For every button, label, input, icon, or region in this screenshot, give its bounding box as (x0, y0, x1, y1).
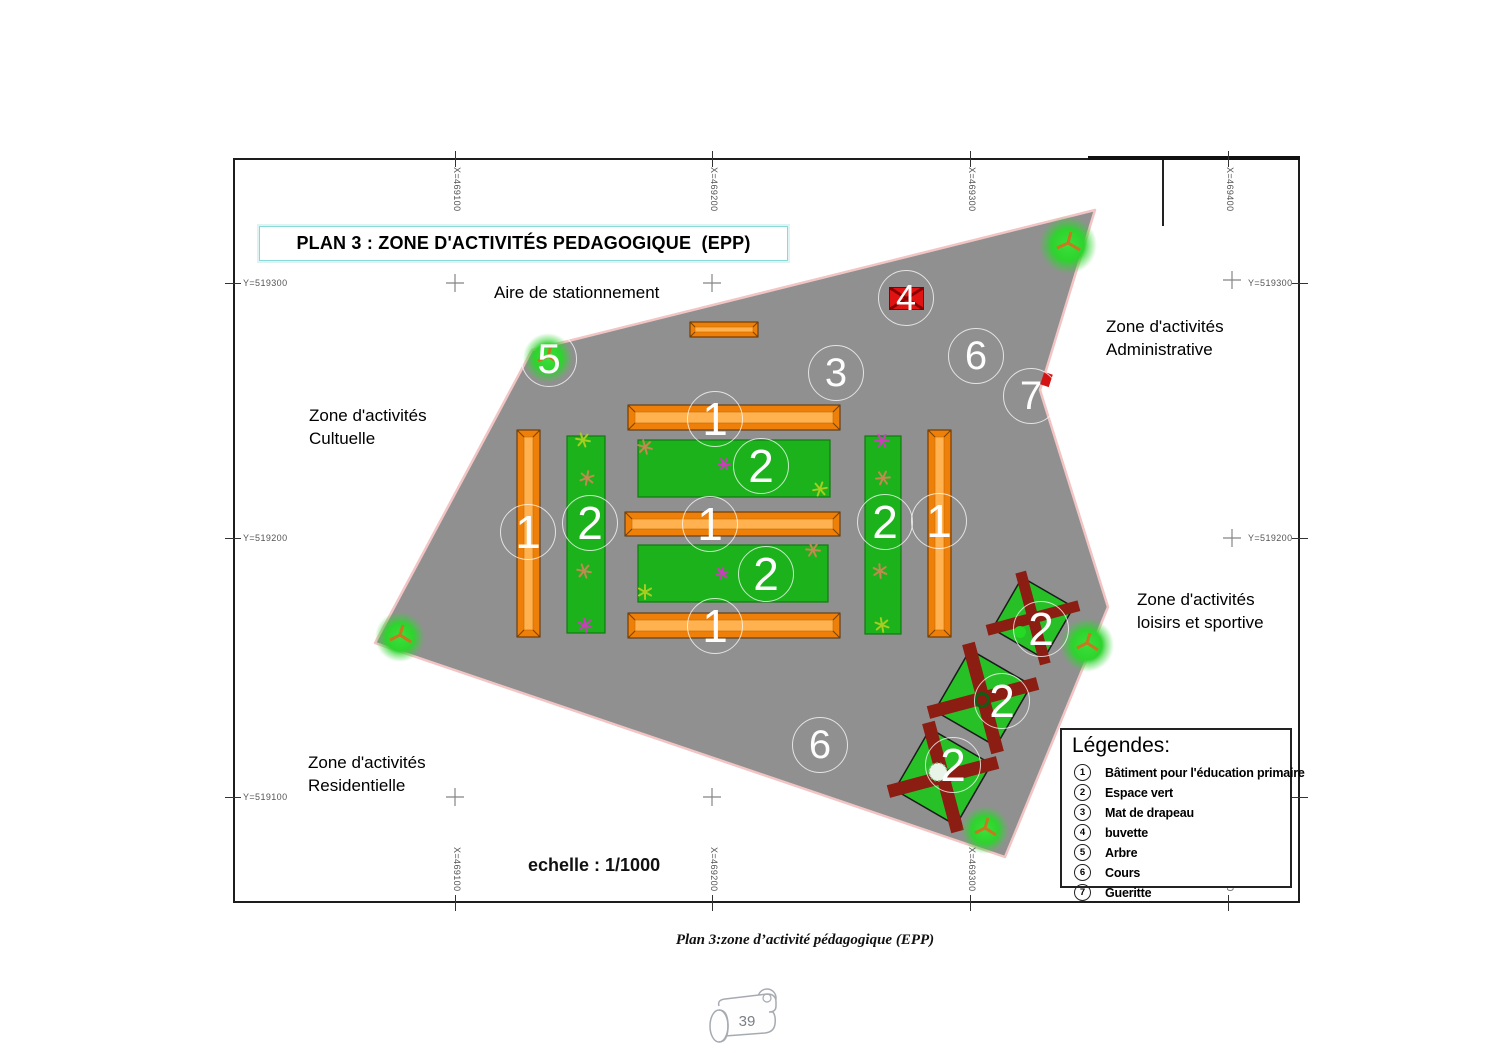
legend-number-circle: 7 (1074, 884, 1091, 901)
tree-icon (1039, 216, 1097, 274)
marker-mat-de-drapeau: 3 (808, 345, 864, 401)
marker-batiment: 1 (682, 496, 738, 552)
zone-label-line: Administrative (1106, 338, 1224, 361)
marker-number: 2 (1028, 602, 1054, 656)
zone-label-line: Cultuelle (309, 427, 427, 450)
legend-item-label: Mat de drapeau (1105, 806, 1194, 820)
zone-label-line: Residentielle (308, 774, 426, 797)
legend-item-label: Gueritte (1105, 886, 1151, 900)
marker-espace-vert: 2 (562, 495, 618, 551)
legend-item: 4 buvette (1074, 824, 1282, 841)
label-parking: Aire de stationnement (494, 281, 659, 304)
legend-item: 5 Arbre (1074, 844, 1282, 861)
legend-item-label: Cours (1105, 866, 1140, 880)
legend-item: 3 Mat de drapeau (1074, 804, 1282, 821)
marker-number: 1 (515, 505, 541, 559)
grid-tick (455, 895, 456, 911)
legend-number-circle: 2 (1074, 784, 1091, 801)
marker-number: 1 (702, 599, 728, 653)
marker-batiment: 1 (687, 391, 743, 447)
grid-tick (970, 151, 971, 167)
legend-number-circle: 4 (1074, 824, 1091, 841)
zone-label-line: Zone d'activités (308, 751, 426, 774)
label-zone-administrative: Zone d'activités Administrative (1106, 315, 1224, 361)
marker-espace-vert: 2 (857, 494, 913, 550)
grid-y-label: Y=519200 (1248, 533, 1293, 543)
page-number-scroll: 39 (703, 986, 787, 1053)
survey-line (1162, 160, 1164, 226)
grid-y-label: Y=519300 (1248, 278, 1293, 288)
grid-tick (712, 151, 713, 167)
grid-tick (455, 151, 456, 167)
marker-number: 7 (1020, 374, 1042, 419)
label-zone-cultuelle: Zone d'activités Cultuelle (309, 404, 427, 450)
marker-espace-vert: 2 (925, 737, 981, 793)
grid-y-label: Y=519200 (243, 533, 288, 543)
marker-number: 1 (697, 497, 723, 551)
marker-number: 6 (809, 723, 831, 768)
legend-item-label: Espace vert (1105, 786, 1173, 800)
marker-espace-vert: 2 (738, 546, 794, 602)
page-number: 39 (739, 1013, 756, 1030)
marker-number: 6 (965, 334, 987, 379)
thick-border-segment (1088, 156, 1300, 160)
marker-arbre: 5 (521, 331, 577, 387)
marker-espace-vert: 2 (733, 438, 789, 494)
marker-number: 2 (753, 547, 779, 601)
marker-batiment: 1 (687, 598, 743, 654)
grid-tick (1228, 151, 1229, 167)
marker-batiment: 1 (500, 504, 556, 560)
grid-tick (1292, 283, 1308, 284)
legend-number-circle: 5 (1074, 844, 1091, 861)
legend-item: 6 Cours (1074, 864, 1282, 881)
marker-espace-vert: 2 (1013, 601, 1069, 657)
grid-tick (1292, 538, 1308, 539)
grid-x-label: X=469100 (452, 847, 462, 892)
grid-x-label: X=469400 (1225, 167, 1235, 212)
plan-title: PLAN 3 : ZONE D'ACTIVITÉS PEDAGOGIQUE (E… (296, 233, 750, 254)
grid-tick (970, 895, 971, 911)
marker-gueritte: 7 (1003, 368, 1059, 424)
legend-box: Légendes: 1 Bâtiment pour l'éducation pr… (1060, 728, 1292, 888)
zone-label-line: Zone d'activités (309, 404, 427, 427)
grid-y-label: Y=519300 (243, 278, 288, 288)
scroll-icon: 39 (703, 986, 787, 1048)
marker-number: 4 (896, 277, 916, 319)
zone-label-line: Zone d'activités (1106, 315, 1224, 338)
marker-number: 2 (872, 495, 898, 549)
building-bar (690, 322, 758, 337)
grid-x-label: X=469200 (709, 847, 719, 892)
marker-number: 5 (537, 335, 560, 383)
marker-espace-vert: 2 (974, 673, 1030, 729)
marker-batiment: 1 (911, 493, 967, 549)
grid-x-label: X=469300 (967, 847, 977, 892)
figure-caption: Plan 3:zone d’activité pédagogique (EPP) (676, 932, 934, 949)
grid-tick (225, 283, 241, 284)
legend-number-circle: 3 (1074, 804, 1091, 821)
marker-buvette: 4 (878, 270, 934, 326)
label-zone-residentielle: Zone d'activités Residentielle (308, 751, 426, 797)
legend-item: 7 Gueritte (1074, 884, 1282, 901)
grid-tick (1292, 797, 1308, 798)
legend-item-label: Arbre (1105, 846, 1137, 860)
marker-cours: 6 (948, 328, 1004, 384)
marker-number: 1 (702, 392, 728, 446)
plan-title-box: PLAN 3 : ZONE D'ACTIVITÉS PEDAGOGIQUE (E… (259, 226, 788, 261)
legend-number-circle: 1 (1074, 764, 1091, 781)
marker-number: 3 (825, 351, 847, 396)
marker-number: 2 (940, 738, 966, 792)
scale-label: echelle : 1/1000 (528, 855, 660, 876)
grid-tick (225, 538, 241, 539)
grid-x-label: X=469200 (709, 167, 719, 212)
grid-tick (225, 797, 241, 798)
label-zone-loisirs-sportive: Zone d'activités loisirs et sportive (1137, 588, 1264, 634)
marker-number: 2 (989, 674, 1015, 728)
legend-item-label: Bâtiment pour l'éducation primaire (1105, 766, 1305, 780)
marker-number: 2 (577, 496, 603, 550)
marker-cours: 6 (792, 717, 848, 773)
grid-x-label: X=469100 (452, 167, 462, 212)
document-page: X=469100 X=469200 X=469300 X=469400 X=46… (0, 0, 1489, 1053)
grid-tick (712, 895, 713, 911)
tree-icon (375, 612, 425, 662)
legend-title: Légendes: (1072, 734, 1282, 758)
grid-y-label: Y=519100 (243, 792, 288, 802)
marker-number: 1 (926, 494, 952, 548)
legend-item: 2 Espace vert (1074, 784, 1282, 801)
zone-label-line: loisirs et sportive (1137, 611, 1264, 634)
zone-label-line: Zone d'activités (1137, 588, 1264, 611)
marker-number: 2 (748, 439, 774, 493)
legend-item-label: buvette (1105, 826, 1148, 840)
grid-x-label: X=469300 (967, 167, 977, 212)
legend-number-circle: 6 (1074, 864, 1091, 881)
legend-item: 1 Bâtiment pour l'éducation primaire (1074, 764, 1282, 781)
